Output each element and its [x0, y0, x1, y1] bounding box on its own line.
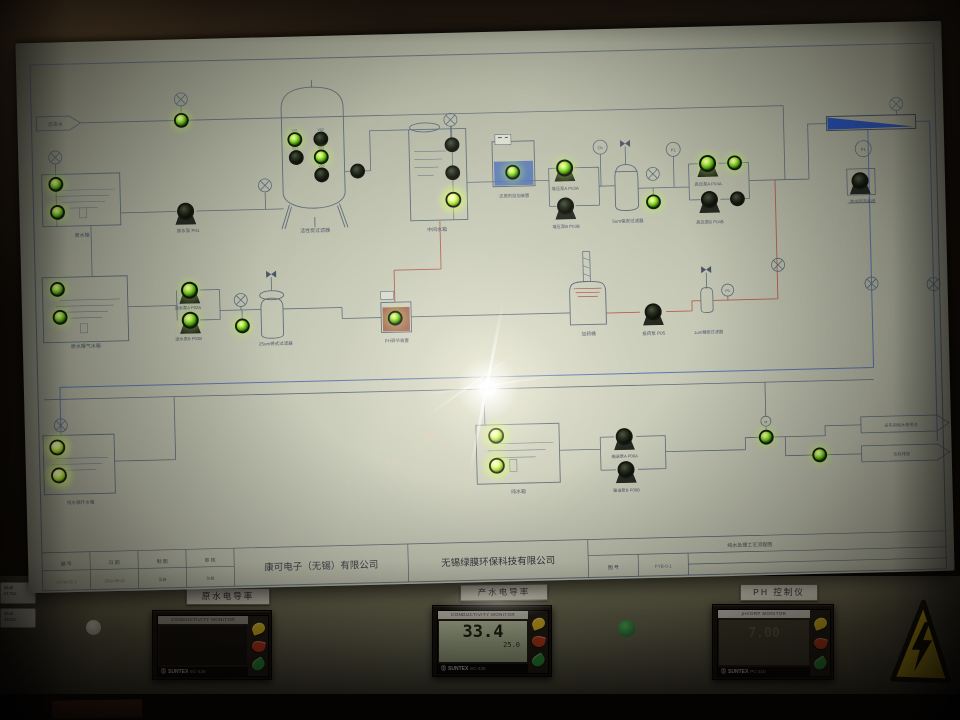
recycle-tank-led-high — [44, 434, 71, 461]
pump-p03a — [552, 156, 577, 182]
mid-tank-led-mid — [446, 166, 459, 179]
inlet-valve-led — [170, 109, 193, 132]
pressure-gauge-icon — [234, 293, 247, 306]
carbon-valve-led-v05 — [315, 168, 328, 181]
suntex-logo-icon: Ⓢ — [721, 668, 726, 675]
carbon-valve-led-v02 — [314, 132, 327, 145]
tb-col1-label: 编 号 — [61, 560, 72, 567]
meter-button-up[interactable] — [250, 621, 266, 636]
instrument-panel: itibal01781 itibal41181 原水电导率 产水电导率 PH 控… — [0, 576, 960, 720]
aeration-tank-led-low — [49, 306, 72, 329]
high-voltage-warning-sign — [888, 595, 955, 694]
meter-button-up[interactable] — [812, 616, 828, 631]
label-dosing-tank: 加药桶 — [581, 330, 596, 337]
process-diagram: 自来水 原水箱 原水泵 P01 V01 — [15, 21, 954, 593]
pressure-gauge-icon — [771, 258, 784, 271]
carbon-valve-led-v01 — [284, 128, 307, 151]
tb-col4-value: 陈敏 — [206, 575, 214, 581]
pressure-gauge-icon — [258, 179, 271, 192]
meter-display: 7.00 — [719, 620, 809, 665]
fine-filter-vessel — [701, 287, 714, 312]
p1-gauge: P1 — [666, 142, 680, 156]
ro-membrane — [826, 114, 915, 130]
photo-scene: 自来水 原水箱 原水泵 P01 V01 — [0, 0, 960, 720]
label-outlet-use: 去车间纯水使用点 — [884, 421, 918, 429]
drawing-no-value: FYB-0-1 — [655, 564, 672, 569]
motor-valve-led — [755, 426, 778, 449]
meter-label-plate-product: 产水电导率 — [460, 584, 548, 602]
ph-controller-meter: pH/ORP MONITOR 7.00 Ⓢ SUNTEX PC-310 — [712, 604, 834, 680]
company-right: 无锡绿膜环保科技有限公司 — [441, 554, 555, 569]
mimic-board: 自来水 原水箱 原水泵 P01 V01 — [15, 21, 954, 593]
pump-p05 — [643, 304, 663, 325]
valve-icon — [266, 271, 276, 278]
meter-header: CONDUCTIVITY MONITOR — [438, 611, 528, 619]
pressure-gauge-icon — [646, 167, 659, 180]
pump-p06a — [614, 429, 634, 450]
svg-text:M: M — [764, 420, 767, 424]
label-carbon-filter: 活性炭过滤器 — [300, 227, 330, 235]
bottom-brown-patch — [52, 699, 142, 719]
valve-tag: V02 — [317, 128, 324, 132]
hp-discharge-valve-led-b — [731, 192, 744, 205]
meter-button-down[interactable] — [812, 636, 827, 649]
carbon-valve-led-v04 — [310, 146, 333, 169]
label-pure-tank: 纯水箱 — [511, 488, 526, 495]
meter-button-down[interactable] — [530, 635, 545, 648]
svg-text:P1: P1 — [861, 147, 867, 152]
meter-button-up[interactable] — [530, 616, 546, 631]
label-raw-pump: 原水泵 P01 — [177, 227, 200, 234]
meter-label-plate-raw: 原水电导率 — [186, 588, 270, 605]
pump-p01 — [175, 204, 195, 225]
drawing-title: 纯水处理工艺流程图 — [727, 541, 772, 549]
pressure-gauge-icon — [174, 93, 187, 106]
concentrate-return-pump — [850, 173, 870, 194]
drain-valve-led — [808, 444, 831, 467]
conductivity-gauge: Cb — [593, 140, 607, 154]
meter-display: 33.4 25.0 — [439, 621, 527, 662]
aeration-tank-led-high — [46, 278, 69, 301]
label-mid-tank: 中间水箱 — [427, 226, 447, 233]
mid-tank-led-low — [440, 186, 467, 213]
conductivity-meter-product: CONDUCTIVITY MONITOR 33.4 25.0 Ⓢ SUNTEX … — [432, 605, 552, 677]
label-dosing-pump: 投药泵 P05 — [642, 330, 665, 338]
label-conc-return: 浓水回流系统 — [850, 197, 877, 205]
suntex-logo-icon: Ⓢ — [441, 665, 446, 672]
pipe-lines — [37, 88, 905, 484]
pump-p04a — [695, 151, 720, 177]
label-hp-pump-b: 高压泵B P04B — [696, 218, 724, 226]
tb-col4-label: 审 核 — [205, 557, 216, 564]
meter-brand-bar: Ⓢ SUNTEX EC-430 — [438, 664, 528, 673]
label-ph-device: PH调节装置 — [385, 337, 410, 345]
pure-tank-led-low — [484, 452, 511, 479]
label-recycle-tank: 纯水循环水箱 — [67, 499, 95, 507]
hp-discharge-valve-led-a — [723, 152, 746, 175]
bag-filter-vessel — [260, 290, 285, 338]
svg-text:P1: P1 — [725, 289, 730, 293]
pump-p04b — [699, 192, 719, 213]
equipment-sticker: itibal41181 — [0, 608, 36, 628]
carbon-outlet-valve-led — [351, 164, 364, 177]
round-sticker-green — [618, 620, 635, 637]
carbon-valve-led-v03 — [290, 151, 303, 164]
label-reducer-dosing: 还原剂投加装置 — [499, 192, 530, 200]
label-boost-pump-b: 增压泵B P03B — [552, 223, 580, 231]
filter-outlet-valve-led — [642, 191, 665, 214]
dosing-tank — [569, 251, 607, 325]
pump-p03b — [555, 198, 575, 219]
meter-brand-bar: Ⓢ SUNTEX EC-430 — [158, 667, 248, 676]
label-aeration-tank: 原水曝气水箱 — [71, 342, 101, 350]
tb-col3-label: 制 图 — [157, 558, 168, 565]
inlet-arrow: 自来水 — [36, 116, 80, 131]
outlet-use-arrow: 去车间纯水使用点 — [861, 415, 949, 433]
tb-col3-value: 吴春 — [158, 576, 166, 582]
conductivity-meter-raw: CONDUCTIVITY MONITOR Ⓢ SUNTEX EC-430 — [152, 610, 272, 680]
diagram-border — [30, 43, 947, 591]
meter-button-enter[interactable] — [530, 653, 547, 669]
meter-button-enter[interactable] — [250, 656, 267, 672]
tb-col1-value: GT-W-01-1 — [57, 579, 78, 584]
label-transfer-pump-b: 输送泵B P06B — [613, 486, 640, 494]
row2-valve-led — [231, 315, 254, 338]
label-feed-pump-b: 送水泵B P02B — [175, 335, 202, 343]
label-fine-filter: 1um精密过滤器 — [694, 328, 724, 336]
meter-display — [159, 626, 247, 665]
outlet-drain-arrow: 达标排放 — [862, 444, 950, 462]
security-filter-vessel — [615, 164, 639, 211]
pump-p02a — [177, 278, 202, 304]
meter-header: pH/ORP MONITOR — [718, 610, 810, 618]
pump-p06b — [616, 462, 636, 483]
motor-valve: M — [761, 416, 771, 426]
label-boost-pump-a: 增压泵A P03A — [551, 185, 579, 193]
pure-tank-led-high — [483, 422, 510, 449]
valve-icon — [701, 266, 711, 273]
label-security-filter: 5um保安过滤器 — [612, 217, 644, 225]
inlet-label: 自来水 — [48, 121, 63, 128]
p1-gauge: P1 — [855, 141, 871, 157]
round-sticker — [86, 620, 101, 635]
meter-header: CONDUCTIVITY MONITOR — [158, 616, 248, 624]
label-outlet-drain: 达标排放 — [893, 450, 911, 457]
pressure-gauge-icon — [890, 97, 903, 110]
company-left: 康可电子（无锡）有限公司 — [264, 559, 378, 574]
level-gauge-icon — [444, 113, 457, 126]
label-bag-filter: 25um袋式过滤器 — [259, 340, 293, 348]
label-hp-pump-a: 高压泵A P04A — [694, 180, 722, 188]
mid-tank-led-high — [445, 138, 458, 151]
meter-brand-bar: Ⓢ SUNTEX PC-310 — [718, 667, 810, 676]
svg-text:Cb: Cb — [598, 145, 604, 150]
suntex-logo-icon: Ⓢ — [161, 668, 166, 675]
label-raw-tank: 原水箱 — [75, 232, 90, 239]
p1-gauge: P1 — [722, 284, 734, 296]
panel-bottom-strip — [0, 694, 960, 720]
raw-tank-led-low — [46, 201, 69, 224]
tb-col2-value: 2011-06-12 — [104, 578, 125, 584]
valve-icon — [620, 140, 630, 147]
raw-tank-led-high — [45, 173, 68, 196]
meter-button-enter[interactable] — [812, 655, 829, 671]
pump-p02b — [178, 308, 203, 334]
meter-label-plate-ph: PH 控制仪 — [740, 584, 818, 601]
drawing-no-label: 图 号 — [608, 565, 619, 571]
recycle-tank-led-low — [46, 462, 73, 489]
meter-button-down[interactable] — [250, 639, 265, 652]
svg-text:P1: P1 — [671, 147, 677, 152]
tb-col2-label: 日 期 — [109, 560, 120, 566]
level-gauge-icon — [49, 151, 62, 164]
label-transfer-pump-a: 输送泵A P06A — [611, 452, 638, 460]
